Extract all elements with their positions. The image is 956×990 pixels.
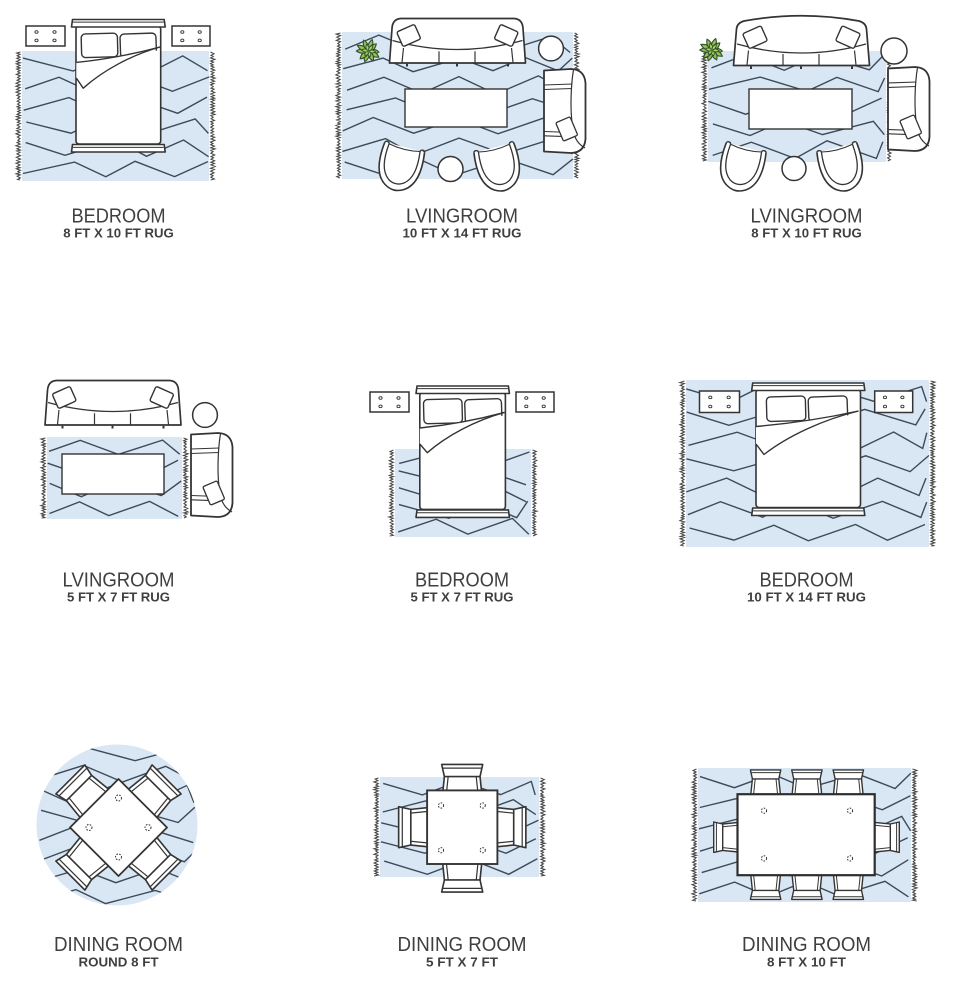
svg-text:BEDROOM: BEDROOM xyxy=(760,569,854,591)
svg-text:ROUND 8 FT: ROUND 8 FT xyxy=(79,954,159,969)
svg-text:DINING ROOM: DINING ROOM xyxy=(398,934,527,956)
svg-text:DINING ROOM: DINING ROOM xyxy=(742,934,871,956)
svg-text:BEDROOM: BEDROOM xyxy=(72,205,166,227)
svg-text:5 FT X 7 FT RUG: 5 FT X 7 FT RUG xyxy=(411,589,514,604)
svg-text:BEDROOM: BEDROOM xyxy=(415,569,509,591)
svg-text:LVINGROOM: LVINGROOM xyxy=(63,569,175,591)
svg-text:5 FT X 7 FT: 5 FT X 7 FT xyxy=(426,954,498,969)
svg-text:DINING ROOM: DINING ROOM xyxy=(54,934,183,956)
svg-text:5 FT X 7 FT RUG: 5 FT X 7 FT RUG xyxy=(67,589,170,604)
svg-text:LVINGROOM: LVINGROOM xyxy=(751,205,863,227)
svg-text:8 FT X 10 FT RUG: 8 FT X 10 FT RUG xyxy=(63,225,174,240)
svg-text:10 FT X 14 FT RUG: 10 FT X 14 FT RUG xyxy=(403,225,522,240)
svg-text:10 FT X 14 FT RUG: 10 FT X 14 FT RUG xyxy=(747,589,866,604)
svg-text:LVINGROOM: LVINGROOM xyxy=(406,205,518,227)
svg-text:8 FT X 10 FT: 8 FT X 10 FT xyxy=(767,954,846,969)
svg-text:8 FT X 10 FT RUG: 8 FT X 10 FT RUG xyxy=(751,225,862,240)
